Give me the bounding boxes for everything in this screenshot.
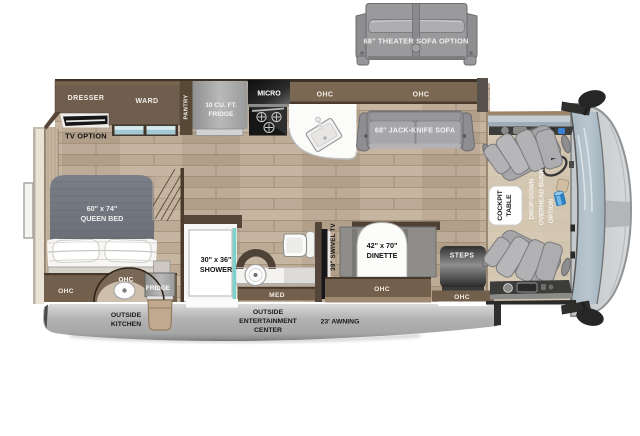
svg-text:DROP-DOWN: DROP-DOWN [529, 178, 536, 219]
svg-text:KITCHEN: KITCHEN [111, 321, 141, 328]
svg-text:DINETTE: DINETTE [367, 251, 398, 260]
svg-text:QUEEN BED: QUEEN BED [81, 214, 124, 223]
svg-text:60" x 74": 60" x 74" [87, 204, 118, 213]
svg-text:SHOWER: SHOWER [200, 265, 233, 274]
svg-text:23' AWNING: 23' AWNING [321, 319, 360, 326]
svg-text:OUTSIDE: OUTSIDE [111, 312, 142, 319]
svg-text:OHC: OHC [317, 92, 334, 99]
svg-text:42" x 70": 42" x 70" [367, 241, 398, 250]
svg-text:OHC: OHC [413, 92, 430, 99]
svg-text:CENTER: CENTER [254, 327, 282, 334]
svg-text:OHC: OHC [374, 286, 390, 293]
svg-text:FRIDGE: FRIDGE [209, 111, 235, 118]
svg-text:TV OPTION: TV OPTION [65, 132, 107, 141]
svg-text:PANTRY: PANTRY [184, 95, 190, 120]
svg-text:STEPS: STEPS [450, 253, 474, 260]
svg-text:OUTSIDE: OUTSIDE [253, 309, 284, 316]
svg-text:FRIDGE: FRIDGE [146, 285, 171, 292]
svg-text:OHC: OHC [58, 288, 74, 295]
svg-text:MICRO: MICRO [257, 91, 281, 98]
svg-text:68" THEATER SOFA OPTION: 68" THEATER SOFA OPTION [363, 37, 468, 46]
svg-text:MED: MED [269, 292, 285, 299]
svg-text:COCKPIT: COCKPIT [497, 189, 504, 220]
svg-text:10 CU. FT.: 10 CU. FT. [205, 102, 237, 109]
svg-text:68" JACK-KNIFE SOFA: 68" JACK-KNIFE SOFA [375, 128, 455, 135]
svg-text:OHC: OHC [454, 294, 470, 301]
svg-text:30" x 36": 30" x 36" [201, 255, 232, 264]
svg-text:39" SWIVEL TV: 39" SWIVEL TV [330, 223, 337, 271]
svg-text:TABLE: TABLE [506, 194, 513, 217]
svg-text:OVERHEAD BUNK: OVERHEAD BUNK [539, 168, 546, 225]
svg-text:ENTERTAINMENT: ENTERTAINMENT [239, 318, 297, 325]
svg-text:WARD: WARD [136, 98, 159, 105]
svg-text:DRESSER: DRESSER [68, 95, 105, 102]
svg-text:OPTION: OPTION [548, 198, 555, 223]
